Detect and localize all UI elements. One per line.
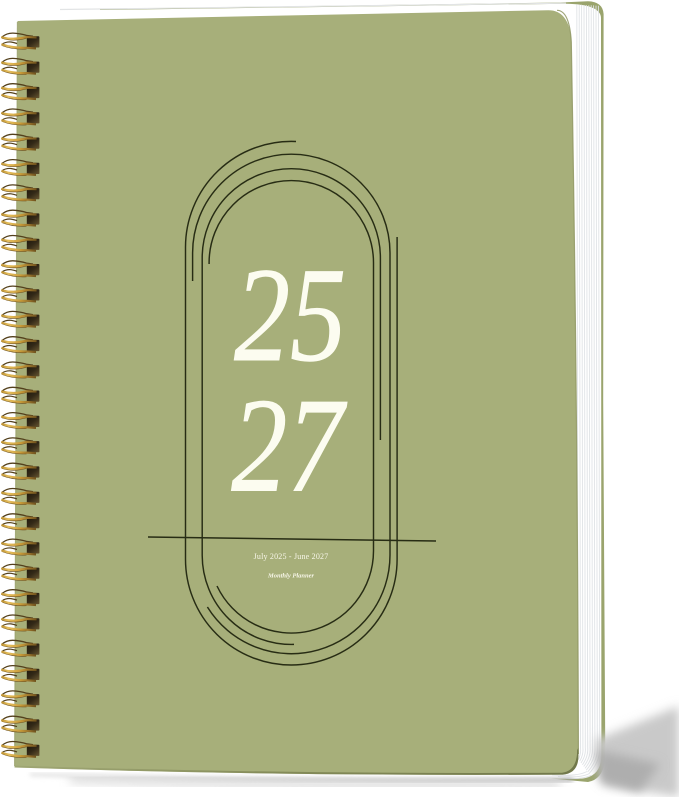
svg-text:25: 25 (234, 239, 346, 389)
svg-text:27: 27 (231, 370, 348, 520)
svg-text:July 2025 - June 2027: July 2025 - June 2027 (254, 552, 329, 561)
svg-text:Monthly Planner: Monthly Planner (267, 573, 315, 580)
